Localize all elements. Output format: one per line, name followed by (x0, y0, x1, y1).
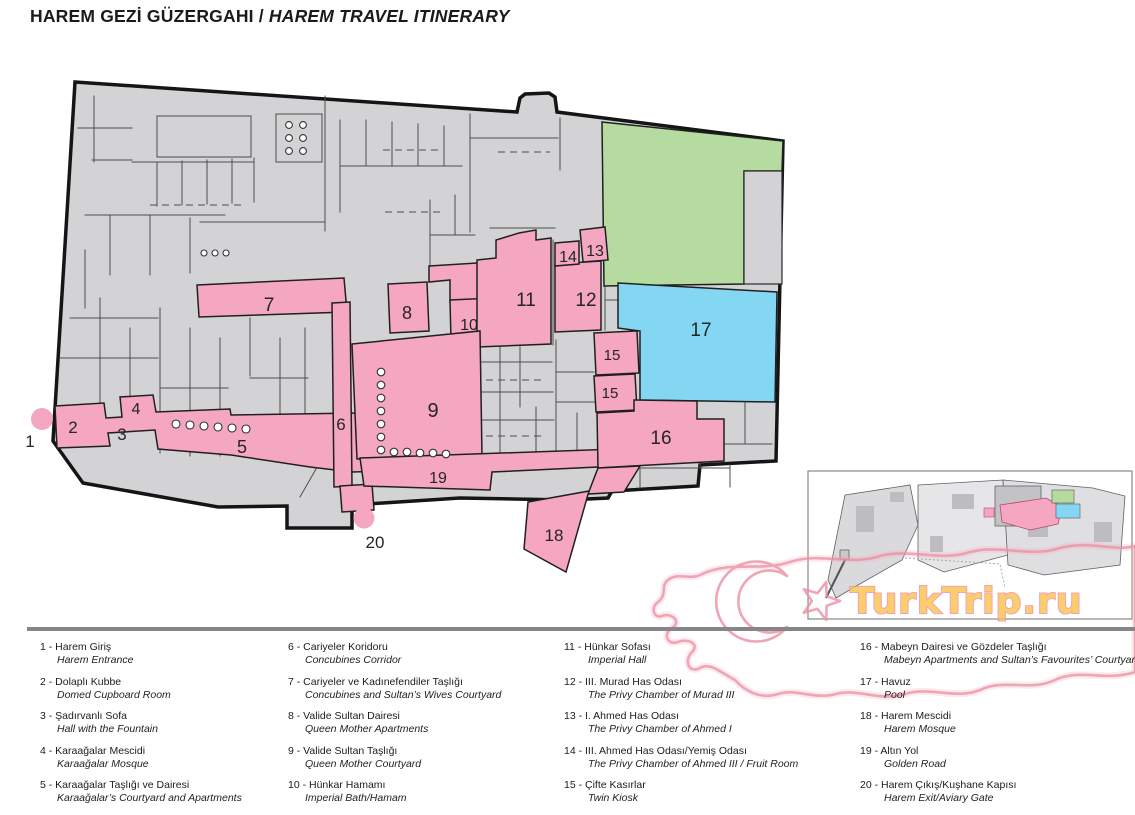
map-label-19: 19 (429, 470, 447, 487)
inset-blue-patch (1056, 504, 1080, 518)
legend-label-tr: 1 - Harem Giriş (40, 641, 280, 654)
map-label-14: 14 (559, 249, 577, 266)
map-label-12: 12 (575, 290, 596, 311)
legend-item-20: 20 - Harem Çıkış/Kuşhane Kapısı Harem Ex… (860, 779, 1132, 805)
legend-label-en: Domed Cupboard Room (57, 689, 280, 702)
map-label-4: 4 (132, 401, 141, 418)
legend-label-tr: 9 - Valide Sultan Taşlığı (288, 745, 550, 758)
legend-item-3: 3 - Şadırvanlı Sofa Hall with the Founta… (40, 710, 280, 736)
legend-label-en: Twin Kiosk (588, 792, 844, 805)
legend-item-7: 7 - Cariyeler ve Kadınefendiler Taşlığı … (288, 676, 550, 702)
legend-item-19: 19 - Altın Yol Golden Road (860, 745, 1132, 771)
legend-label-en: Queen Mother Courtyard (305, 758, 550, 771)
legend-item-1: 1 - Harem Giriş Harem Entrance (40, 641, 280, 667)
legend-column-3: 11 - Hünkar Sofası Imperial Hall 12 - II… (564, 641, 844, 814)
map-label-5: 5 (237, 437, 247, 457)
legend-label-tr: 5 - Karaağalar Taşlığı ve Dairesi (40, 779, 280, 792)
legend-item-18: 18 - Harem Mescidi Harem Mosque (860, 710, 1132, 736)
legend-label-en: Mabeyn Apartments and Sultan’s Favourite… (884, 654, 1132, 667)
map-label-11: 11 (516, 290, 536, 311)
map-area-6 (332, 302, 352, 487)
map-area-6-gate-tab (340, 484, 374, 512)
legend-label-tr: 19 - Altın Yol (860, 745, 1132, 758)
map-label-8: 8 (402, 303, 412, 323)
legend-label-tr: 13 - I. Ahmed Has Odası (564, 710, 844, 723)
legend-label-tr: 6 - Cariyeler Koridoru (288, 641, 550, 654)
legend-label-en: Harem Exit/Aviary Gate (884, 792, 1132, 805)
legend-column-2: 6 - Cariyeler Koridoru Concubines Corrid… (288, 641, 550, 814)
map-label-1: 1 (25, 432, 34, 451)
legend-item-6: 6 - Cariyeler Koridoru Concubines Corrid… (288, 641, 550, 667)
legend-label-en: The Privy Chamber of Ahmed I (588, 723, 844, 736)
legend-item-13: 13 - I. Ahmed Has Odası The Privy Chambe… (564, 710, 844, 736)
map-label-6: 6 (336, 415, 345, 434)
map-label-3: 3 (117, 425, 126, 444)
legend-label-tr: 2 - Dolaplı Kubbe (40, 676, 280, 689)
map-label-16: 16 (650, 428, 671, 449)
legend-label-en: The Privy Chamber of Murad III (588, 689, 844, 702)
map-label-15-lower: 15 (602, 385, 619, 402)
legend-label-en: Harem Mosque (884, 723, 1132, 736)
legend-label-en: Harem Entrance (57, 654, 280, 667)
legend-label-tr: 7 - Cariyeler ve Kadınefendiler Taşlığı (288, 676, 550, 689)
legend-label-tr: 12 - III. Murad Has Odası (564, 676, 844, 689)
map-label-7: 7 (264, 295, 275, 316)
map-marker-20 (354, 508, 375, 529)
map-label-15-upper: 15 (604, 347, 621, 364)
map-label-17: 17 (690, 320, 711, 341)
legend-label-en: The Privy Chamber of Ahmed III / Fruit R… (588, 758, 844, 771)
green-area-gray-block (744, 171, 782, 284)
legend-item-2: 2 - Dolaplı Kubbe Domed Cupboard Room (40, 676, 280, 702)
legend-item-14: 14 - III. Ahmed Has Odası/Yemiş Odası Th… (564, 745, 844, 771)
legend-label-tr: 16 - Mabeyn Dairesi ve Gözdeler Taşlığı (860, 641, 1132, 654)
inset-green-patch (1052, 490, 1074, 503)
map-label-10: 10 (460, 317, 478, 334)
legend-label-en: Karaağalar’s Courtyard and Apartments (57, 792, 280, 805)
map-label-9: 9 (427, 400, 438, 422)
legend-label-tr: 15 - Çifte Kasırlar (564, 779, 844, 792)
legend-label-tr: 20 - Harem Çıkış/Kuşhane Kapısı (860, 779, 1132, 792)
legend-label-tr: 4 - Karaağalar Mescidi (40, 745, 280, 758)
legend-item-9: 9 - Valide Sultan Taşlığı Queen Mother C… (288, 745, 550, 771)
legend-item-15: 15 - Çifte Kasırlar Twin Kiosk (564, 779, 844, 805)
watermark-text: TurkTrip.ru (850, 581, 1082, 622)
legend-label-tr: 14 - III. Ahmed Has Odası/Yemiş Odası (564, 745, 844, 758)
legend-item-5: 5 - Karaağalar Taşlığı ve Dairesi Karaağ… (40, 779, 280, 805)
section-divider (27, 627, 1135, 631)
legend-label-tr: 18 - Harem Mescidi (860, 710, 1132, 723)
map-label-18: 18 (545, 526, 564, 545)
legend-label-en: Pool (884, 689, 1132, 702)
legend-label-en: Imperial Hall (588, 654, 844, 667)
legend-item-16: 16 - Mabeyn Dairesi ve Gözdeler Taşlığı … (860, 641, 1132, 667)
map-label-13: 13 (586, 243, 604, 260)
legend-label-tr: 3 - Şadırvanlı Sofa (40, 710, 280, 723)
legend-label-tr: 8 - Valide Sultan Dairesi (288, 710, 550, 723)
legend-label-en: Karaağalar Mosque (57, 758, 280, 771)
legend-item-10: 10 - Hünkar Hamamı Imperial Bath/Hamam (288, 779, 550, 805)
legend-label-en: Concubines and Sultan’s Wives Courtyard (305, 689, 550, 702)
legend-column-1: 1 - Harem Giriş Harem Entrance 2 - Dolap… (40, 641, 280, 814)
legend-item-8: 8 - Valide Sultan Dairesi Queen Mother A… (288, 710, 550, 736)
legend-column-4: 16 - Mabeyn Dairesi ve Gözdeler Taşlığı … (860, 641, 1132, 814)
legend-item-12: 12 - III. Murad Has Odası The Privy Cham… (564, 676, 844, 702)
map-area-9 (352, 331, 482, 459)
legend-label-en: Imperial Bath/Hamam (305, 792, 550, 805)
map-label-2: 2 (68, 418, 77, 437)
legend-label-en: Queen Mother Apartments (305, 723, 550, 736)
legend-label-en: Golden Road (884, 758, 1132, 771)
legend-item-4: 4 - Karaağalar Mescidi Karaağalar Mosque (40, 745, 280, 771)
legend-label-en: Hall with the Fountain (57, 723, 280, 736)
map-label-20: 20 (366, 533, 385, 552)
map-area-17-pool (618, 283, 777, 402)
legend-label-tr: 10 - Hünkar Hamamı (288, 779, 550, 792)
legend-item-11: 11 - Hünkar Sofası Imperial Hall (564, 641, 844, 667)
legend-label-en: Concubines Corridor (305, 654, 550, 667)
map-marker-1 (31, 408, 53, 430)
legend-label-tr: 17 - Havuz (860, 676, 1132, 689)
legend-item-17: 17 - Havuz Pool (860, 676, 1132, 702)
legend-label-tr: 11 - Hünkar Sofası (564, 641, 844, 654)
